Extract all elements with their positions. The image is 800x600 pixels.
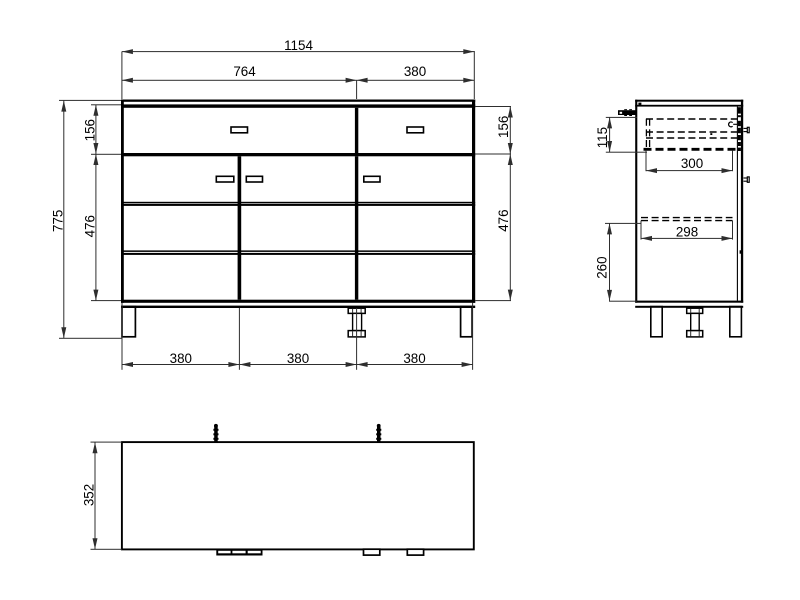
svg-text:380: 380: [170, 351, 192, 366]
svg-text:380: 380: [403, 351, 425, 366]
svg-text:764: 764: [233, 64, 256, 79]
svg-text:260: 260: [595, 256, 610, 278]
svg-text:380: 380: [404, 64, 426, 79]
svg-text:775: 775: [50, 210, 65, 232]
svg-text:1154: 1154: [284, 38, 313, 53]
svg-text:476: 476: [82, 215, 97, 237]
svg-text:156: 156: [82, 119, 97, 141]
svg-text:476: 476: [496, 209, 511, 231]
svg-text:115: 115: [595, 127, 610, 148]
svg-text:380: 380: [287, 351, 309, 366]
svg-text:156: 156: [496, 116, 511, 138]
svg-text:352: 352: [81, 484, 96, 506]
svg-text:298: 298: [676, 224, 698, 239]
svg-text:300: 300: [681, 156, 703, 171]
